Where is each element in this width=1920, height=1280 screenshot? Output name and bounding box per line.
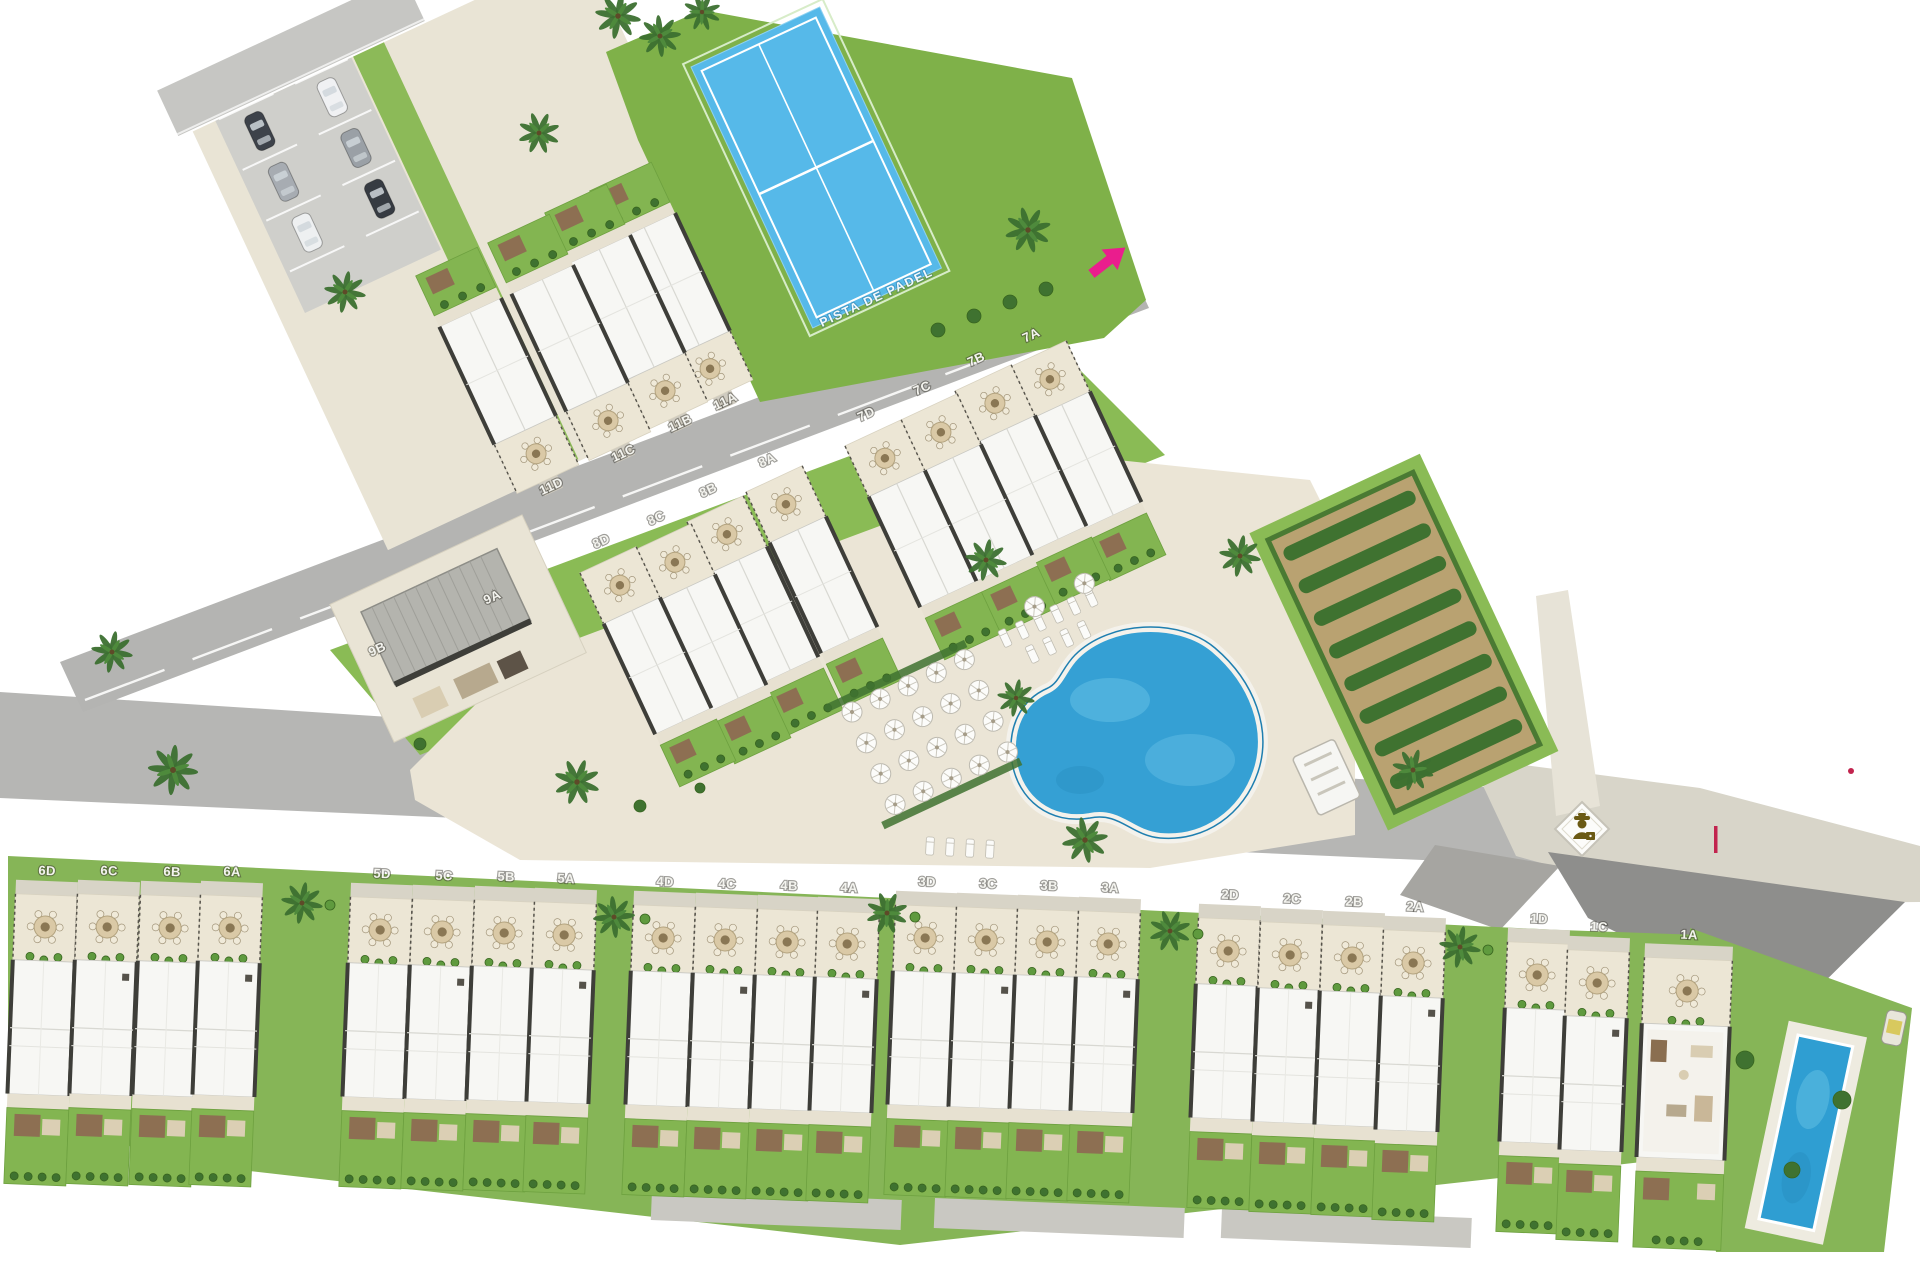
bush-icon: [571, 1181, 579, 1189]
bush-icon: [387, 1176, 395, 1184]
bush-icon: [345, 1175, 353, 1183]
bush-icon: [179, 954, 187, 962]
bush-icon: [910, 912, 920, 922]
bush-icon: [1562, 1228, 1570, 1236]
unit-label-1C: 1C: [1590, 919, 1608, 935]
site-plan-svg: 11A11B11C11D7A7B7C7D8A8B8C8D9A9B6D6C6B6A…: [0, 0, 1920, 1280]
unit-label-2A: 2A: [1406, 899, 1424, 915]
bush-icon: [695, 783, 705, 793]
bush-icon: [1576, 1228, 1584, 1236]
bush-icon: [407, 1177, 415, 1185]
bush-icon: [114, 1173, 122, 1181]
sun-lounger-icon: [985, 840, 994, 858]
unit-label-2B: 2B: [1345, 894, 1363, 910]
bush-icon: [1115, 1190, 1123, 1198]
bush-icon: [163, 1174, 171, 1182]
bush-icon: [718, 1186, 726, 1194]
bush-icon: [1652, 1236, 1660, 1244]
bush-icon: [1054, 1188, 1062, 1196]
bush-icon: [195, 1173, 203, 1181]
sun-lounger-icon: [965, 839, 974, 857]
bush-icon: [1221, 1197, 1229, 1205]
unit-label-2D: 2D: [1221, 887, 1239, 903]
bush-icon: [1359, 1204, 1367, 1212]
bush-icon: [796, 968, 804, 976]
bush-icon: [1345, 1204, 1353, 1212]
bush-icon: [1028, 967, 1036, 975]
bush-icon: [780, 1188, 788, 1196]
unit-label-6A: 6A: [223, 864, 241, 880]
bush-icon: [1299, 981, 1307, 989]
bush-icon: [1089, 969, 1097, 977]
bush-icon: [672, 964, 680, 972]
bush-icon: [149, 1173, 157, 1181]
bush-icon: [1544, 1221, 1552, 1229]
bush-icon: [88, 952, 96, 960]
bush-icon: [979, 1186, 987, 1194]
unit-label-6D: 6D: [38, 863, 56, 879]
bush-icon: [1255, 1200, 1263, 1208]
bush-icon: [1420, 1209, 1428, 1217]
bush-icon: [1394, 988, 1402, 996]
unit-label-1D: 1D: [1530, 911, 1548, 927]
unit-label-4B: 4B: [780, 878, 798, 894]
bush-icon: [325, 900, 335, 910]
sun-lounger-icon: [926, 837, 935, 855]
bush-icon: [1518, 1000, 1526, 1008]
bush-icon: [1392, 1208, 1400, 1216]
bush-icon: [573, 961, 581, 969]
bush-icon: [1012, 1187, 1020, 1195]
bush-icon: [86, 1172, 94, 1180]
bush-icon: [1101, 1190, 1109, 1198]
bush-icon: [1604, 1229, 1612, 1237]
unit-label-3B: 3B: [1040, 878, 1058, 894]
bush-icon: [239, 954, 247, 962]
bush-icon: [1666, 1236, 1674, 1244]
unit-label-5A: 5A: [557, 871, 575, 887]
bush-icon: [211, 953, 219, 961]
bush-icon: [690, 1185, 698, 1193]
bush-icon: [1209, 976, 1217, 984]
unit-label-5B: 5B: [497, 869, 515, 885]
bush-icon: [854, 1190, 862, 1198]
unit-label-1A: 1A: [1680, 927, 1698, 943]
unit-label-5C: 5C: [435, 868, 453, 884]
bush-icon: [965, 1185, 973, 1193]
bush-icon: [670, 1184, 678, 1192]
bush-icon: [513, 959, 521, 967]
bush-icon: [223, 1174, 231, 1182]
bush-icon: [704, 1185, 712, 1193]
bush-icon: [451, 958, 459, 966]
bush-icon: [1502, 1220, 1510, 1228]
bush-icon: [1606, 1009, 1614, 1017]
unit-label-4D: 4D: [656, 874, 674, 890]
bush-icon: [993, 1186, 1001, 1194]
bush-icon: [1546, 1001, 1554, 1009]
bush-icon: [1269, 1200, 1277, 1208]
bush-icon: [706, 965, 714, 973]
bush-icon: [768, 967, 776, 975]
bush-icon: [72, 1172, 80, 1180]
unit-1C: [1554, 936, 1632, 1242]
bush-icon: [934, 964, 942, 972]
bush-icon: [1680, 1237, 1688, 1245]
bush-icon: [1087, 1189, 1095, 1197]
bush-icon: [209, 1173, 217, 1181]
bush-icon: [1235, 1197, 1243, 1205]
unit-label-8C: 8C: [645, 507, 667, 528]
site-plan-page: 11A11B11C11D7A7B7C7D8A8B8C8D9A9B6D6C6B6A…: [0, 0, 1920, 1280]
bush-icon: [1283, 1201, 1291, 1209]
bush-icon: [1516, 1220, 1524, 1228]
bush-icon: [918, 1184, 926, 1192]
bush-icon: [1237, 977, 1245, 985]
bush-icon: [483, 1178, 491, 1186]
bush-icon: [54, 953, 62, 961]
bush-icon: [485, 958, 493, 966]
bush-icon: [906, 963, 914, 971]
bush-icon: [732, 1186, 740, 1194]
bush-icon: [1026, 1187, 1034, 1195]
bush-icon: [967, 309, 981, 323]
bush-icon: [24, 1172, 32, 1180]
bush-icon: [1333, 983, 1341, 991]
bush-icon: [995, 966, 1003, 974]
bush-icon: [1378, 1208, 1386, 1216]
bush-icon: [1297, 1201, 1305, 1209]
bush-icon: [656, 1184, 664, 1192]
bush-icon: [1668, 1016, 1676, 1024]
bush-icon: [734, 966, 742, 974]
bush-icon: [557, 1181, 565, 1189]
bush-icon: [826, 1189, 834, 1197]
bush-icon: [1317, 1203, 1325, 1211]
bush-icon: [423, 957, 431, 965]
bush-icon: [1331, 1203, 1339, 1211]
unit-label-5D: 5D: [373, 866, 391, 882]
bush-icon: [100, 1173, 108, 1181]
bush-icon: [38, 1173, 46, 1181]
bush-icon: [421, 1177, 429, 1185]
bush-icon: [1040, 1188, 1048, 1196]
bush-icon: [904, 1183, 912, 1191]
unit-1A: [1631, 943, 1735, 1250]
bush-icon: [642, 1183, 650, 1191]
bush-icon: [116, 953, 124, 961]
bush-icon: [389, 956, 397, 964]
bush-icon: [1694, 1237, 1702, 1245]
bush-icon: [1406, 1209, 1414, 1217]
bush-icon: [856, 970, 864, 978]
bush-icon: [828, 969, 836, 977]
bush-icon: [1833, 1091, 1851, 1109]
red-tick-marker: [1714, 826, 1718, 853]
unit-label-3D: 3D: [918, 874, 936, 890]
bush-icon: [177, 1174, 185, 1182]
unit-label-2C: 2C: [1283, 891, 1301, 907]
bush-icon: [1784, 1162, 1800, 1178]
bush-icon: [361, 955, 369, 963]
bush-icon: [237, 1174, 245, 1182]
unit-label-8B: 8B: [697, 479, 719, 500]
bush-icon: [469, 1178, 477, 1186]
bush-icon: [766, 1187, 774, 1195]
unit-label-4A: 4A: [840, 880, 858, 896]
bush-icon: [543, 1180, 551, 1188]
bush-icon: [359, 1175, 367, 1183]
bush-icon: [511, 1179, 519, 1187]
bush-icon: [1193, 1196, 1201, 1204]
bush-icon: [931, 323, 945, 337]
bush-icon: [634, 800, 646, 812]
bush-icon: [1590, 1229, 1598, 1237]
bush-icon: [628, 1183, 636, 1191]
bush-icon: [1003, 295, 1017, 309]
red-dot-marker: [1848, 768, 1854, 774]
bush-icon: [10, 1172, 18, 1180]
bush-icon: [52, 1173, 60, 1181]
sun-lounger-icon: [946, 838, 955, 856]
bush-icon: [640, 914, 650, 924]
bush-icon: [435, 1178, 443, 1186]
bush-icon: [373, 1176, 381, 1184]
bush-icon: [414, 738, 426, 750]
bush-icon: [545, 960, 553, 968]
bush-icon: [449, 1178, 457, 1186]
bush-icon: [890, 1183, 898, 1191]
bush-icon: [1117, 970, 1125, 978]
bush-icon: [1193, 929, 1203, 939]
bush-icon: [1056, 968, 1064, 976]
bush-icon: [135, 1173, 143, 1181]
bush-icon: [1073, 1189, 1081, 1197]
bush-icon: [1361, 984, 1369, 992]
bush-icon: [529, 1180, 537, 1188]
bush-icon: [1483, 945, 1493, 955]
unit-label-3C: 3C: [979, 876, 997, 892]
bush-icon: [497, 1179, 505, 1187]
bush-icon: [1530, 1221, 1538, 1229]
bush-icon: [752, 1187, 760, 1195]
bush-icon: [1271, 980, 1279, 988]
bush-icon: [812, 1189, 820, 1197]
bush-icon: [1039, 282, 1053, 296]
bush-icon: [1422, 989, 1430, 997]
bush-icon: [932, 1184, 940, 1192]
unit-label-6C: 6C: [100, 863, 118, 879]
bush-icon: [26, 952, 34, 960]
bush-icon: [967, 965, 975, 973]
bush-icon: [1736, 1051, 1754, 1069]
unit-label-6B: 6B: [163, 864, 181, 880]
bush-icon: [951, 1185, 959, 1193]
unit-label-4C: 4C: [718, 876, 736, 892]
bush-icon: [1207, 1196, 1215, 1204]
bush-icon: [1696, 1017, 1704, 1025]
bush-icon: [151, 953, 159, 961]
bush-icon: [1578, 1008, 1586, 1016]
unit-label-3A: 3A: [1101, 880, 1119, 896]
bush-icon: [840, 1190, 848, 1198]
bush-icon: [644, 963, 652, 971]
bush-icon: [794, 1188, 802, 1196]
